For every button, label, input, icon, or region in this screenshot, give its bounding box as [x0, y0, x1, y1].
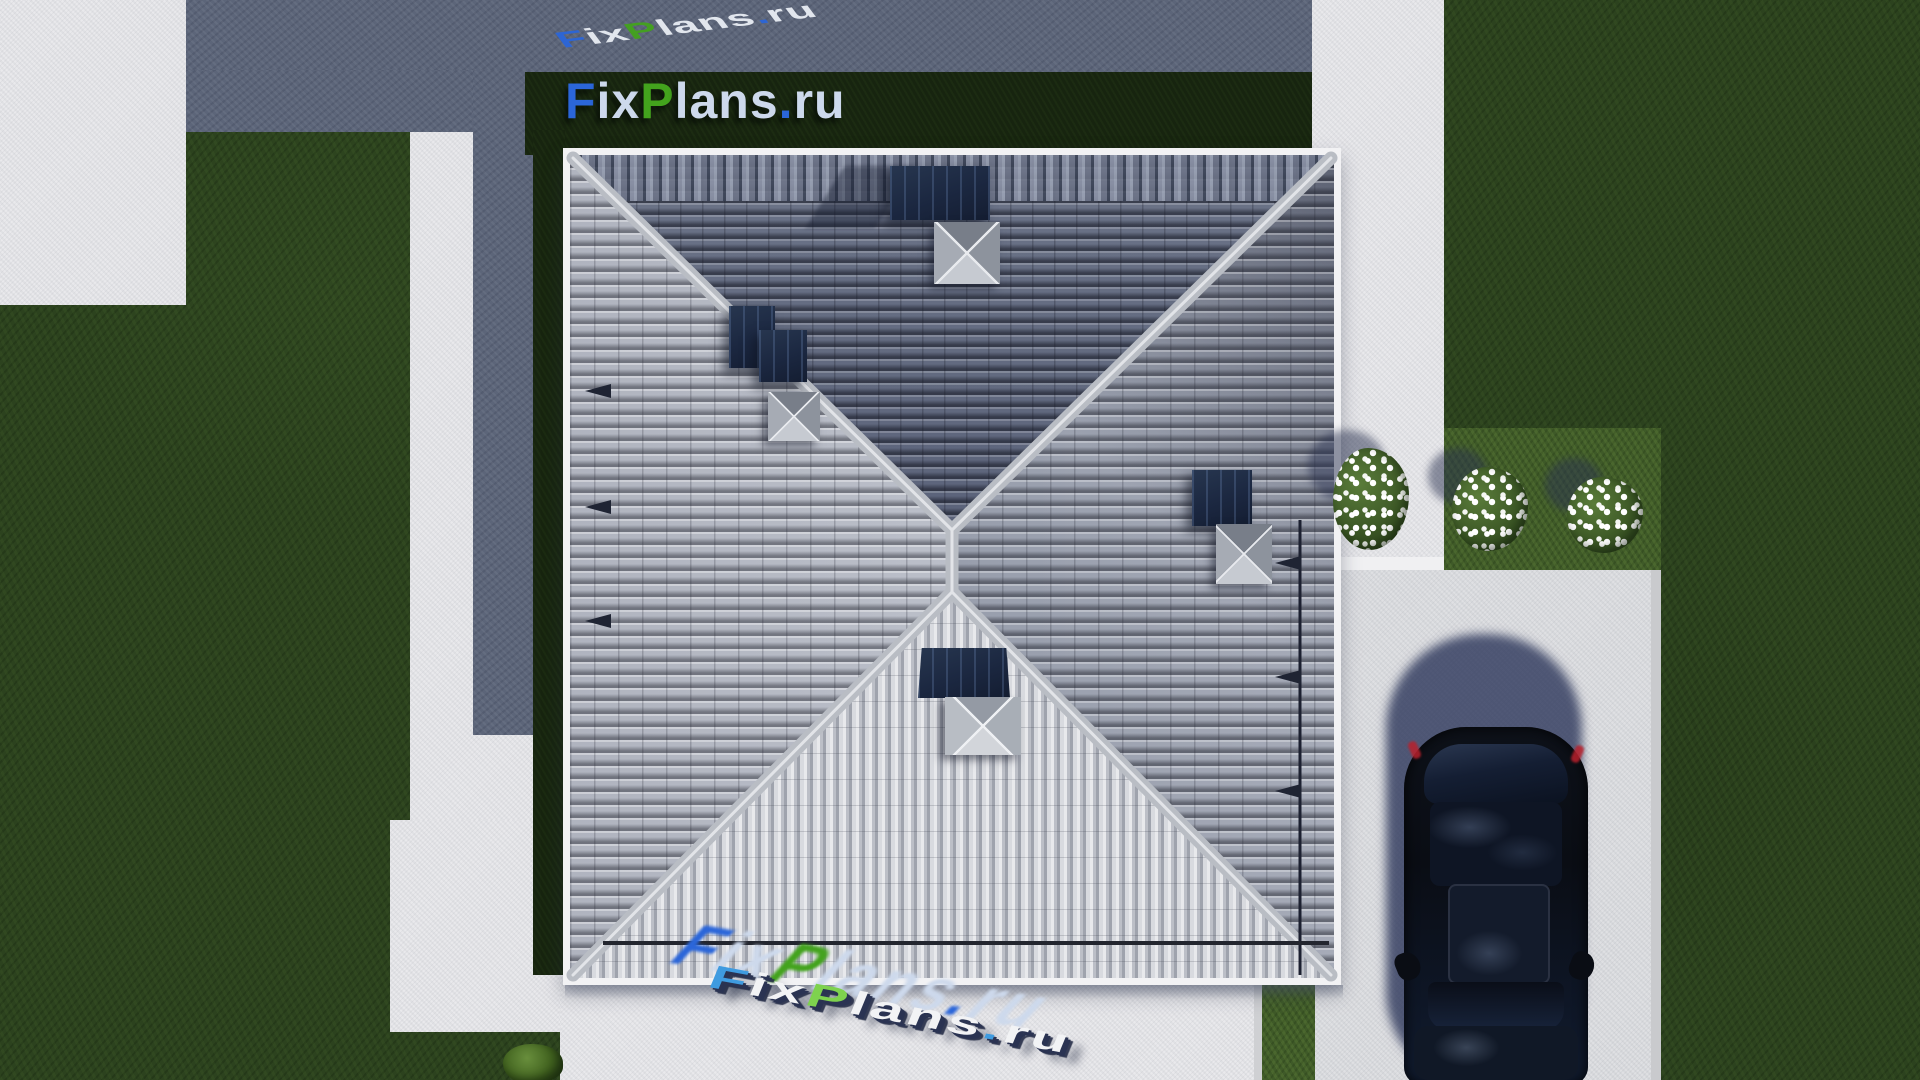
east-roof-vent	[1275, 784, 1301, 798]
green-bush-southwest	[503, 1044, 563, 1080]
east-chimney-cap	[1216, 524, 1272, 584]
west-roof-vent	[585, 614, 611, 628]
south-chimney-cap	[945, 697, 1021, 755]
car-roof	[1430, 802, 1562, 886]
car-windshield	[1428, 982, 1564, 1030]
west-lawn-strip	[533, 130, 565, 975]
east-roof-vent	[1275, 556, 1301, 570]
west-chimney-cap	[768, 392, 820, 441]
north-skylight	[890, 166, 990, 220]
west-roof-vent	[585, 384, 611, 398]
building-shadow-west	[473, 70, 533, 735]
logo-letter-segment: ru	[794, 73, 846, 129]
logo-letter-segment: ix	[597, 73, 641, 129]
aerial-site-render: FixPlans.ru FixPlans.ru	[0, 0, 1920, 1080]
north-chimney-cap	[934, 222, 1000, 284]
driveway-right-curb	[1651, 557, 1661, 1080]
east-skylight	[1192, 470, 1252, 526]
car-rear-window	[1424, 744, 1568, 804]
west-roof-vent	[585, 500, 611, 514]
logo-letter-segment: .	[779, 73, 794, 129]
logo-letter-segment: P	[640, 73, 674, 129]
pavement-top-left-corner	[0, 0, 186, 305]
car-sunroof	[1448, 884, 1550, 984]
logo-letter-segment: lans	[675, 73, 779, 129]
logo-letter-segment: F	[565, 73, 597, 129]
west-skylight-b	[759, 330, 807, 382]
house-hip-roof	[563, 148, 1341, 985]
south-solar-panel	[918, 648, 1010, 698]
car-hood	[1414, 1026, 1578, 1080]
site-logo-banner: FixPlans.ru	[565, 72, 846, 130]
east-roof-vent	[1275, 670, 1301, 684]
